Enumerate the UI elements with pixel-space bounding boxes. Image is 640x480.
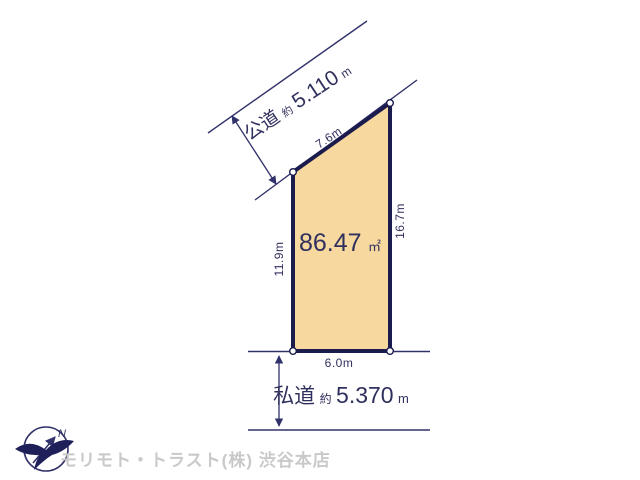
company-watermark: モリモト・トラスト(株) 渋谷本店 — [60, 446, 620, 471]
diagram-svg: 86.47 ㎡ 7.6m 11.9m 16.7m 6.0m 公道 約 5.110… — [0, 0, 640, 480]
land-plot-diagram: 86.47 ㎡ 7.6m 11.9m 16.7m 6.0m 公道 約 5.110… — [0, 0, 640, 480]
right-edge-dimension: 16.7m — [393, 203, 407, 239]
vertex-dot-bottom-right — [387, 348, 394, 355]
left-edge-dimension: 11.9m — [272, 242, 286, 277]
private-road-label: 私道 約 5.370 m — [273, 382, 409, 408]
bottom-edge-dimension: 6.0m — [325, 356, 354, 370]
north-label: N — [58, 428, 66, 440]
vertex-dot-top-left — [290, 169, 297, 176]
vertex-dot-top-right — [387, 100, 394, 107]
vertex-dot-bottom-left — [290, 348, 297, 355]
plot-polygon — [293, 103, 390, 351]
